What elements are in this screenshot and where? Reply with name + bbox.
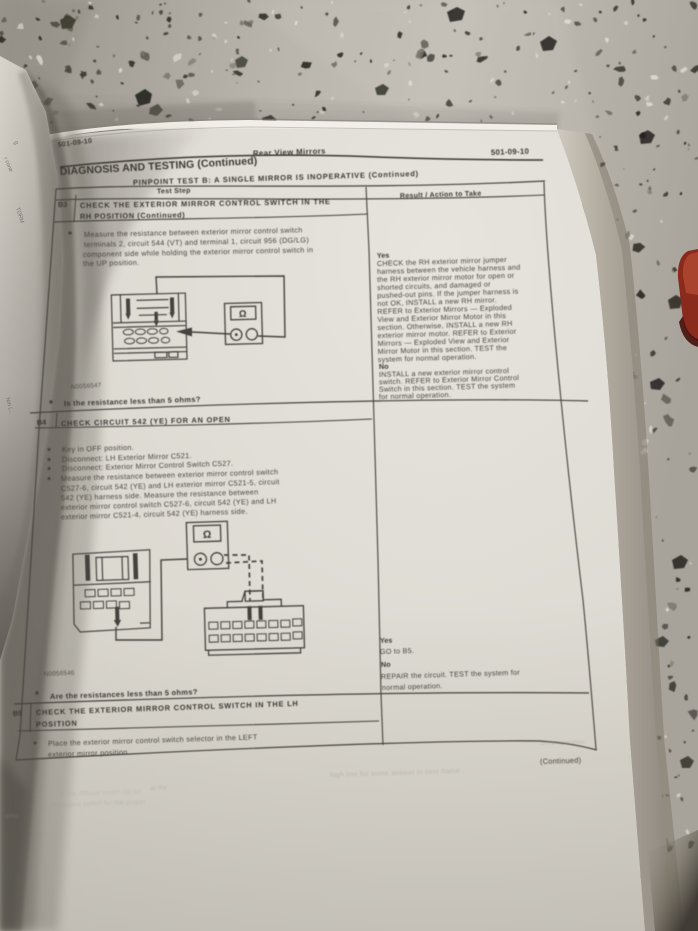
svg-text:B3: B3 — [58, 200, 67, 209]
svg-text:GO to B5.: GO to B5. — [380, 646, 414, 656]
svg-text:N0056546: N0056546 — [44, 670, 75, 678]
svg-text:normal operation.: normal operation. — [382, 681, 443, 692]
svg-text:B4: B4 — [37, 418, 48, 427]
svg-text:Yes: Yes — [380, 636, 393, 645]
svg-text:No: No — [381, 660, 391, 669]
svg-text:Ω: Ω — [239, 309, 247, 320]
svg-text:at the: at the — [150, 784, 168, 792]
svg-text:onto: onto — [5, 813, 19, 820]
svg-text:Test Step: Test Step — [157, 187, 191, 195]
svg-text:501-09-10: 501-09-10 — [491, 147, 530, 157]
svg-text:Ω: Ω — [203, 529, 212, 541]
svg-text:(Continued): (Continued) — [540, 756, 582, 766]
svg-text:the UP position.: the UP position. — [83, 258, 140, 268]
svg-text:POSITION: POSITION — [36, 719, 78, 729]
svg-text:B5: B5 — [13, 709, 23, 718]
